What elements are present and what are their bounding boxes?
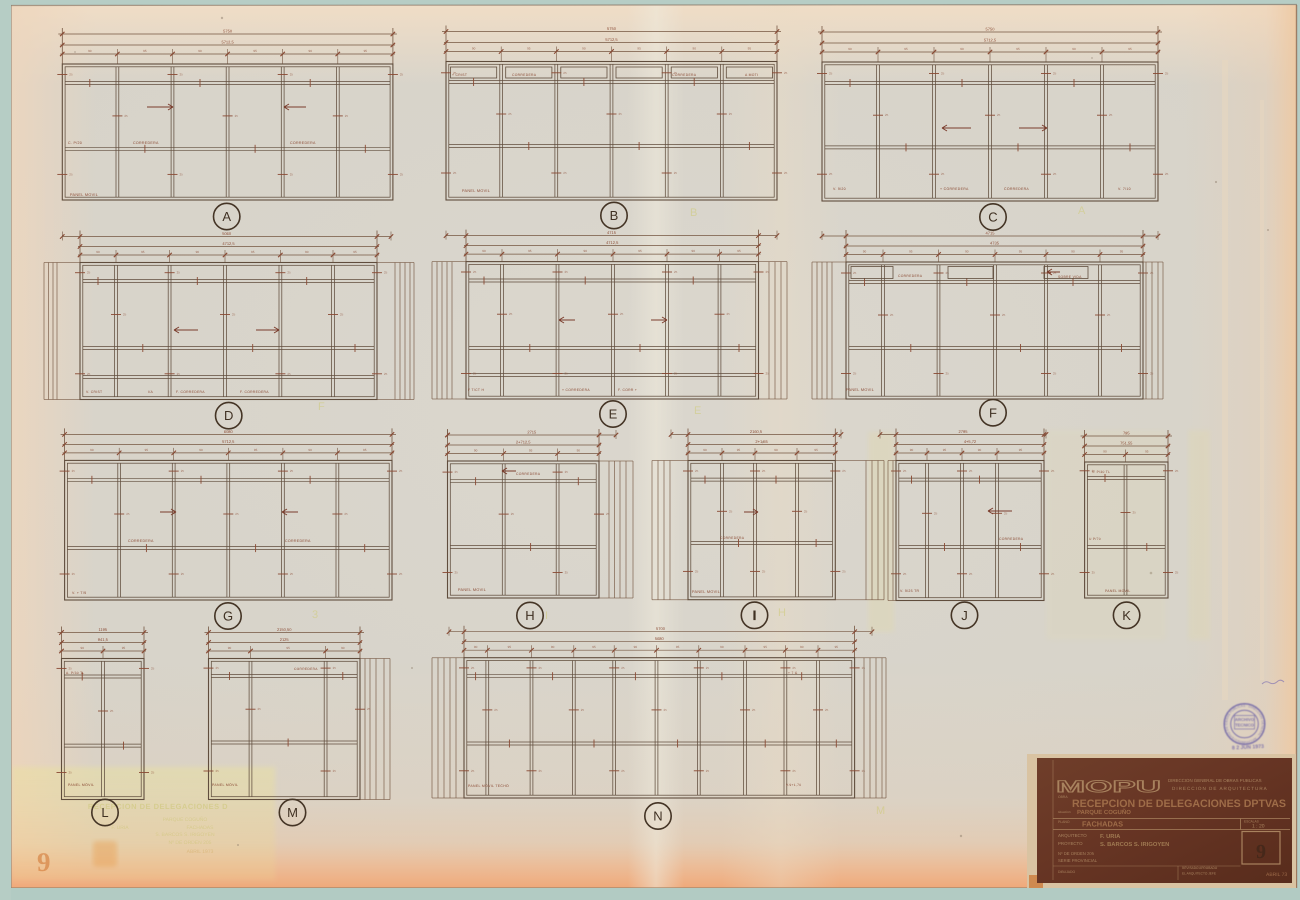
svg-text:25: 25	[565, 571, 569, 575]
svg-text:90: 90	[848, 47, 852, 51]
svg-text:FACHADAS: FACHADAS	[1082, 820, 1123, 829]
svg-text:ARCHIVO: ARCHIVO	[1235, 717, 1255, 722]
svg-text:N: N	[653, 809, 662, 824]
svg-text:90: 90	[960, 47, 964, 51]
svg-text:95: 95	[528, 249, 532, 253]
svg-text:25: 25	[232, 313, 236, 317]
svg-text:5712,5: 5712,5	[221, 40, 234, 45]
svg-text:95: 95	[251, 250, 255, 254]
svg-text:C. P/20: C. P/20	[68, 141, 82, 145]
svg-text:25: 25	[124, 114, 128, 118]
svg-text:25: 25	[842, 569, 846, 573]
svg-text:25: 25	[784, 71, 788, 75]
svg-text:V.9+1,70: V.9+1,70	[786, 783, 801, 787]
svg-text:25: 25	[1107, 313, 1111, 317]
svg-text:PANEL MOVIL: PANEL MOVIL	[846, 388, 874, 392]
svg-text:25: 25	[399, 469, 403, 473]
svg-text:K: K	[1122, 608, 1131, 623]
svg-text:5750: 5750	[607, 26, 617, 31]
svg-text:25: 25	[1051, 469, 1055, 473]
svg-text:+ CORREDERA: + CORREDERA	[940, 187, 969, 191]
svg-text:95: 95	[508, 645, 512, 649]
svg-text:5712,5: 5712,5	[984, 38, 997, 43]
svg-text:25: 25	[934, 511, 938, 515]
svg-text:25: 25	[621, 769, 625, 773]
svg-text:25: 25	[563, 71, 567, 75]
svg-text:4715: 4715	[607, 230, 617, 235]
svg-text:H: H	[778, 607, 786, 619]
svg-text:DIRECCION GENERAL DE OBRAS: DIRECCION GENERAL DE OBRAS PUBLICAS	[1168, 778, 1262, 783]
svg-text:95: 95	[353, 250, 357, 254]
svg-text:25: 25	[87, 372, 91, 376]
svg-text:PROYECTO: PROYECTO	[1058, 841, 1083, 846]
svg-text:95: 95	[1019, 250, 1023, 254]
svg-text:90: 90	[910, 448, 914, 452]
svg-text:25: 25	[1053, 172, 1057, 176]
svg-text:V. CRIST: V. CRIST	[86, 390, 102, 394]
svg-text:PANEL MOVIL: PANEL MOVIL	[212, 783, 238, 787]
svg-text:F. URIA: F. URIA	[111, 825, 129, 831]
svg-text:M: M	[287, 805, 298, 820]
svg-text:1195: 1195	[98, 627, 107, 632]
svg-text:RECEPCION DE DELEGACIONES DPTV: RECEPCION DE DELEGACIONES DPTVAS	[1072, 798, 1286, 810]
svg-text:2795: 2795	[959, 429, 969, 434]
svg-text:1 : 20: 1 : 20	[1252, 824, 1265, 830]
svg-text:25: 25	[842, 469, 846, 473]
svg-text:MOPU: MOPU	[1056, 778, 1161, 796]
svg-text:A. P/30 TL: A. P/30 TL	[66, 671, 85, 675]
svg-text:CORREDERA: CORREDERA	[672, 73, 697, 77]
svg-text:95: 95	[638, 249, 642, 253]
svg-text:H: H	[525, 608, 534, 623]
svg-text:90: 90	[692, 47, 696, 51]
svg-text:SERIE PROVINCIAL: SERIE PROVINCIAL	[1058, 858, 1098, 863]
svg-text:V. 7/10: V. 7/10	[1118, 187, 1131, 191]
svg-text:90: 90	[551, 645, 555, 649]
svg-text:95: 95	[737, 448, 741, 452]
svg-text:25: 25	[941, 172, 945, 176]
svg-text:9: 9	[37, 847, 51, 877]
svg-text:25: 25	[903, 469, 907, 473]
svg-text:25: 25	[565, 470, 569, 474]
svg-text:90: 90	[198, 49, 202, 53]
svg-text:J: J	[961, 608, 968, 623]
svg-text:F. URIA: F. URIA	[1100, 834, 1121, 840]
svg-text:F. CORREDERA: F. CORREDERA	[176, 390, 205, 394]
svg-text:25: 25	[455, 470, 459, 474]
svg-text:F: F	[318, 401, 325, 413]
svg-text:+ CRIST: + CRIST	[452, 73, 467, 77]
svg-text:25: 25	[804, 509, 808, 513]
svg-text:4+5,72: 4+5,72	[964, 439, 977, 444]
svg-text:V. 9/20: V. 9/20	[833, 187, 846, 191]
svg-text:4712,5: 4712,5	[222, 241, 235, 246]
svg-text:Nº DE ORDEN 205: Nº DE ORDEN 205	[1058, 851, 1095, 856]
svg-text:25: 25	[110, 709, 114, 713]
svg-text:25: 25	[853, 372, 857, 376]
svg-text:S. BARCOS S. IRIGOYEN: S. BARCOS S. IRIGOYEN	[1100, 841, 1169, 848]
svg-text:795: 795	[1123, 431, 1130, 436]
svg-text:25: 25	[399, 572, 403, 576]
svg-text:25: 25	[674, 171, 678, 175]
svg-text:25: 25	[752, 708, 756, 712]
svg-text:4735: 4735	[990, 241, 1000, 246]
svg-text:EL ARQUITECTO JEFE: EL ARQUITECTO JEFE	[1182, 872, 1216, 876]
svg-text:25: 25	[177, 372, 181, 376]
svg-text:2160,5: 2160,5	[750, 429, 763, 434]
svg-text:25: 25	[455, 571, 459, 575]
svg-text:CORREDERA: CORREDERA	[999, 537, 1024, 541]
svg-text:90: 90	[90, 448, 94, 452]
svg-text:I: I	[545, 610, 548, 622]
svg-text:25: 25	[180, 73, 184, 77]
svg-text:751,55: 751,55	[1120, 441, 1133, 446]
svg-text:F. CORREDERA: F. CORREDERA	[240, 390, 269, 394]
svg-text:25: 25	[621, 666, 625, 670]
svg-text:PARQUE COGUÑO: PARQUE COGUÑO	[163, 816, 208, 823]
svg-text:ARQUITECTO: ARQUITECTO	[1058, 833, 1087, 838]
svg-text:25: 25	[1175, 571, 1179, 575]
svg-text:25: 25	[1175, 469, 1179, 473]
svg-text:5712,5: 5712,5	[605, 37, 618, 42]
svg-text:25: 25	[565, 270, 569, 274]
svg-text:A: A	[222, 209, 231, 224]
svg-text:25: 25	[539, 666, 543, 670]
svg-text:25: 25	[126, 512, 130, 516]
svg-text:2+1,55: 2+1,55	[755, 439, 768, 444]
svg-text:941,5: 941,5	[98, 637, 109, 642]
svg-text:V. P/30 TL: V. P/30 TL	[1092, 470, 1110, 474]
svg-text:25: 25	[258, 707, 262, 711]
svg-text:25: 25	[853, 271, 857, 275]
svg-text:4712,5: 4712,5	[606, 240, 619, 245]
svg-text:90: 90	[308, 448, 312, 452]
svg-text:25: 25	[473, 270, 477, 274]
svg-text:PARQUE COGUÑO: PARQUE COGUÑO	[1077, 808, 1131, 816]
svg-text:25: 25	[563, 171, 567, 175]
svg-text:25: 25	[177, 271, 181, 275]
svg-text:25: 25	[290, 469, 294, 473]
svg-text:CORREDERA: CORREDERA	[294, 667, 318, 671]
svg-text:90: 90	[196, 250, 200, 254]
svg-text:25: 25	[941, 72, 945, 76]
svg-text:25: 25	[762, 469, 766, 473]
svg-text:25: 25	[235, 114, 239, 118]
svg-text:25: 25	[1053, 72, 1057, 76]
svg-text:90: 90	[703, 448, 707, 452]
svg-text:95: 95	[363, 448, 367, 452]
svg-text:2715: 2715	[527, 430, 537, 435]
svg-text:25: 25	[674, 372, 678, 376]
svg-text:90: 90	[965, 250, 969, 254]
svg-text:25: 25	[829, 172, 833, 176]
svg-text:25: 25	[1053, 372, 1057, 376]
svg-text:25: 25	[664, 708, 668, 712]
svg-text:25: 25	[766, 372, 770, 376]
svg-text:90: 90	[634, 645, 638, 649]
svg-text:95: 95	[592, 645, 596, 649]
svg-text:S. BARCOS S. IRIGOYEN: S. BARCOS S. IRIGOYEN	[155, 832, 215, 838]
svg-text:B: B	[610, 208, 619, 223]
svg-text:90: 90	[308, 49, 312, 53]
svg-text:FACHADAS: FACHADAS	[187, 825, 215, 831]
svg-text:95: 95	[1019, 448, 1023, 452]
svg-text:95: 95	[286, 646, 290, 650]
svg-text:25: 25	[290, 172, 294, 176]
svg-text:PANEL MOVIL TECHO: PANEL MOVIL TECHO	[468, 784, 509, 788]
svg-text:DIRECCION DE ARQUITECTURA: DIRECCION DE ARQUITECTURA	[1172, 786, 1268, 791]
svg-text:95: 95	[904, 47, 908, 51]
svg-text:95: 95	[364, 49, 368, 53]
svg-text:25: 25	[333, 666, 337, 670]
svg-text:5750: 5750	[986, 27, 996, 32]
svg-text:25: 25	[946, 372, 950, 376]
svg-text:CORREDERA: CORREDERA	[512, 73, 537, 77]
svg-text:95: 95	[143, 49, 147, 53]
svg-text:25: 25	[674, 270, 678, 274]
svg-text:90: 90	[577, 449, 581, 453]
svg-text:90: 90	[1072, 47, 1076, 51]
svg-text:25: 25	[792, 769, 796, 773]
svg-text:L: L	[101, 805, 108, 820]
svg-text:25: 25	[87, 271, 91, 275]
svg-text:DIBUJADO: DIBUJADO	[1058, 870, 1076, 874]
svg-text:90: 90	[474, 645, 478, 649]
svg-text:25: 25	[69, 172, 73, 176]
svg-text:25: 25	[862, 769, 866, 773]
svg-text:25: 25	[471, 769, 475, 773]
svg-text:25: 25	[1133, 511, 1137, 515]
svg-text:25: 25	[473, 372, 477, 376]
svg-text:90: 90	[800, 645, 804, 649]
svg-text:25: 25	[400, 172, 404, 176]
svg-text:25: 25	[340, 313, 344, 317]
svg-text:90: 90	[88, 49, 92, 53]
svg-text:25: 25	[216, 666, 220, 670]
svg-text:25: 25	[706, 769, 710, 773]
svg-text:PANEL MOVIL: PANEL MOVIL	[692, 590, 720, 594]
svg-text:25: 25	[290, 572, 294, 576]
svg-text:25: 25	[762, 569, 766, 573]
svg-text:9: 9	[1256, 841, 1266, 863]
svg-text:25: 25	[69, 666, 73, 670]
svg-text:25: 25	[69, 771, 73, 775]
svg-text:25: 25	[969, 469, 973, 473]
svg-text:25: 25	[619, 112, 623, 116]
svg-text:25: 25	[862, 666, 866, 670]
svg-text:25: 25	[539, 769, 543, 773]
svg-text:Nº DE ORDEN 205: Nº DE ORDEN 205	[169, 840, 212, 846]
svg-text:6080: 6080	[224, 429, 234, 434]
svg-text:25: 25	[508, 112, 512, 116]
svg-text:25: 25	[384, 271, 388, 275]
svg-text:5700: 5700	[656, 626, 666, 631]
svg-text:RECEPCION DE DELEGACIONES D: RECEPCION DE DELEGACIONES D	[88, 802, 228, 811]
svg-text:25: 25	[345, 114, 349, 118]
svg-text:PLANO: PLANO	[1058, 820, 1070, 824]
svg-text:25: 25	[181, 572, 185, 576]
svg-text:PANEL MOVIL: PANEL MOVIL	[68, 783, 94, 787]
svg-text:25: 25	[766, 270, 770, 274]
svg-text:CORREDERA: CORREDERA	[285, 539, 311, 543]
svg-text:25: 25	[825, 708, 829, 712]
svg-text:25: 25	[72, 572, 76, 576]
svg-text:90: 90	[1103, 450, 1107, 454]
svg-text:25: 25	[181, 469, 185, 473]
svg-text:CORREDERA: CORREDERA	[128, 539, 154, 543]
svg-text:CORREDERA: CORREDERA	[133, 141, 159, 145]
svg-text:25: 25	[729, 509, 733, 513]
svg-text:A MOTI: A MOTI	[745, 73, 758, 77]
svg-text:PANEL MOVIL: PANEL MOVIL	[458, 588, 486, 592]
svg-text:25: 25	[695, 569, 699, 573]
svg-text:25: 25	[333, 769, 337, 773]
svg-text:U P/70: U P/70	[1089, 537, 1101, 541]
svg-text:25: 25	[1002, 313, 1006, 317]
svg-text:ABRIL 1973: ABRIL 1973	[187, 849, 214, 855]
svg-text:ABRIL 73: ABRIL 73	[1266, 872, 1287, 878]
svg-text:5060: 5060	[222, 231, 232, 236]
svg-text:90: 90	[472, 47, 476, 51]
svg-text:95: 95	[637, 47, 641, 51]
svg-text:25: 25	[123, 313, 127, 317]
svg-text:25: 25	[727, 312, 731, 316]
svg-text:95: 95	[909, 250, 913, 254]
svg-text:95: 95	[748, 47, 752, 51]
svg-text:4715: 4715	[986, 231, 996, 236]
svg-text:95: 95	[527, 47, 531, 51]
svg-text:90: 90	[720, 645, 724, 649]
svg-text:95: 95	[814, 448, 818, 452]
svg-text:25: 25	[695, 469, 699, 473]
svg-text:25: 25	[72, 469, 76, 473]
svg-text:F: F	[989, 405, 997, 420]
svg-text:CORREDERA: CORREDERA	[290, 141, 316, 145]
svg-text:90: 90	[978, 448, 982, 452]
svg-text:90: 90	[482, 249, 486, 253]
svg-text:90: 90	[305, 250, 309, 254]
svg-text:F. CORR +: F. CORR +	[618, 388, 637, 392]
svg-text:V. + T/9: V. + T/9	[72, 591, 86, 595]
svg-text:25: 25	[581, 708, 585, 712]
svg-text:95: 95	[835, 645, 839, 649]
svg-text:90: 90	[474, 449, 478, 453]
svg-text:E: E	[694, 405, 701, 417]
svg-text:25: 25	[400, 73, 404, 77]
svg-text:95: 95	[676, 645, 680, 649]
svg-text:CORREDERA: CORREDERA	[720, 536, 745, 540]
svg-text:3: 3	[312, 609, 318, 621]
svg-text:95: 95	[529, 449, 533, 453]
svg-text:25: 25	[1109, 113, 1113, 117]
svg-text:+ 7 G: + 7 G	[788, 671, 798, 675]
svg-text:95: 95	[253, 49, 257, 53]
svg-text:90: 90	[80, 646, 84, 650]
svg-text:90: 90	[583, 249, 587, 253]
svg-text:90: 90	[774, 448, 778, 452]
svg-text:25: 25	[511, 512, 515, 516]
svg-text:25: 25	[509, 312, 513, 316]
svg-text:PANEL MOVIL: PANEL MOVIL	[462, 189, 490, 193]
svg-text:A: A	[1078, 205, 1086, 217]
svg-text:2+712,5: 2+712,5	[516, 440, 531, 445]
svg-text:25: 25	[1004, 511, 1008, 515]
svg-text:25: 25	[946, 271, 950, 275]
svg-text:G: G	[223, 609, 233, 624]
svg-text:95: 95	[737, 249, 741, 253]
svg-text:25: 25	[829, 72, 833, 76]
svg-text:5680: 5680	[655, 636, 665, 641]
svg-text:95: 95	[145, 448, 149, 452]
svg-text:25: 25	[903, 572, 907, 576]
svg-text:B: B	[690, 207, 697, 219]
svg-text:25: 25	[290, 73, 294, 77]
svg-text:CORREDERA: CORREDERA	[516, 472, 541, 476]
svg-text:25: 25	[69, 73, 73, 77]
svg-text:5750: 5750	[223, 29, 233, 34]
svg-text:25: 25	[885, 113, 889, 117]
svg-text:95: 95	[1016, 47, 1020, 51]
svg-text:90: 90	[863, 250, 867, 254]
svg-text:25: 25	[706, 666, 710, 670]
svg-text:25: 25	[151, 771, 155, 775]
svg-text:25: 25	[494, 708, 498, 712]
svg-text:25: 25	[1092, 571, 1096, 575]
svg-text:25: 25	[287, 271, 291, 275]
svg-text:90: 90	[199, 448, 203, 452]
svg-text:25: 25	[1051, 572, 1055, 576]
svg-text:situacion: situacion	[1058, 810, 1071, 814]
svg-text:25: 25	[784, 171, 788, 175]
svg-text:OBRA: OBRA	[1058, 795, 1068, 799]
svg-text:90: 90	[96, 250, 100, 254]
svg-text:E: E	[609, 407, 618, 422]
svg-text:25: 25	[344, 512, 348, 516]
svg-text:25: 25	[384, 372, 388, 376]
svg-text:REVISADO APROBADO: REVISADO APROBADO	[1182, 866, 1218, 870]
svg-text:95: 95	[943, 448, 947, 452]
svg-text:2150,50: 2150,50	[277, 627, 292, 632]
svg-text:90: 90	[582, 47, 586, 51]
svg-text:D: D	[224, 408, 233, 423]
svg-text:25: 25	[180, 172, 184, 176]
svg-text:M: M	[876, 805, 885, 817]
svg-text:90: 90	[1071, 250, 1075, 254]
svg-text:25: 25	[620, 312, 624, 316]
svg-text:PANEL MOVIL: PANEL MOVIL	[70, 193, 98, 197]
svg-text:95: 95	[763, 645, 767, 649]
svg-text:95: 95	[122, 646, 126, 650]
svg-text:25: 25	[287, 372, 291, 376]
svg-text:95: 95	[1120, 250, 1124, 254]
svg-text:95: 95	[254, 448, 258, 452]
svg-text:25: 25	[729, 112, 733, 116]
svg-text:90: 90	[691, 249, 695, 253]
svg-text:25: 25	[969, 572, 973, 576]
svg-text:25: 25	[565, 372, 569, 376]
svg-text:25: 25	[890, 313, 894, 317]
svg-text:90: 90	[228, 646, 232, 650]
svg-text:95: 95	[1128, 47, 1132, 51]
svg-text:25: 25	[997, 113, 1001, 117]
svg-text:25: 25	[792, 666, 796, 670]
svg-text:TECNICO: TECNICO	[1235, 723, 1255, 728]
svg-text:25: 25	[471, 666, 475, 670]
svg-text:F T/CT H: F T/CT H	[468, 388, 484, 392]
svg-text:25: 25	[1165, 172, 1169, 176]
svg-text:95: 95	[1145, 450, 1149, 454]
svg-text:90: 90	[341, 646, 345, 650]
